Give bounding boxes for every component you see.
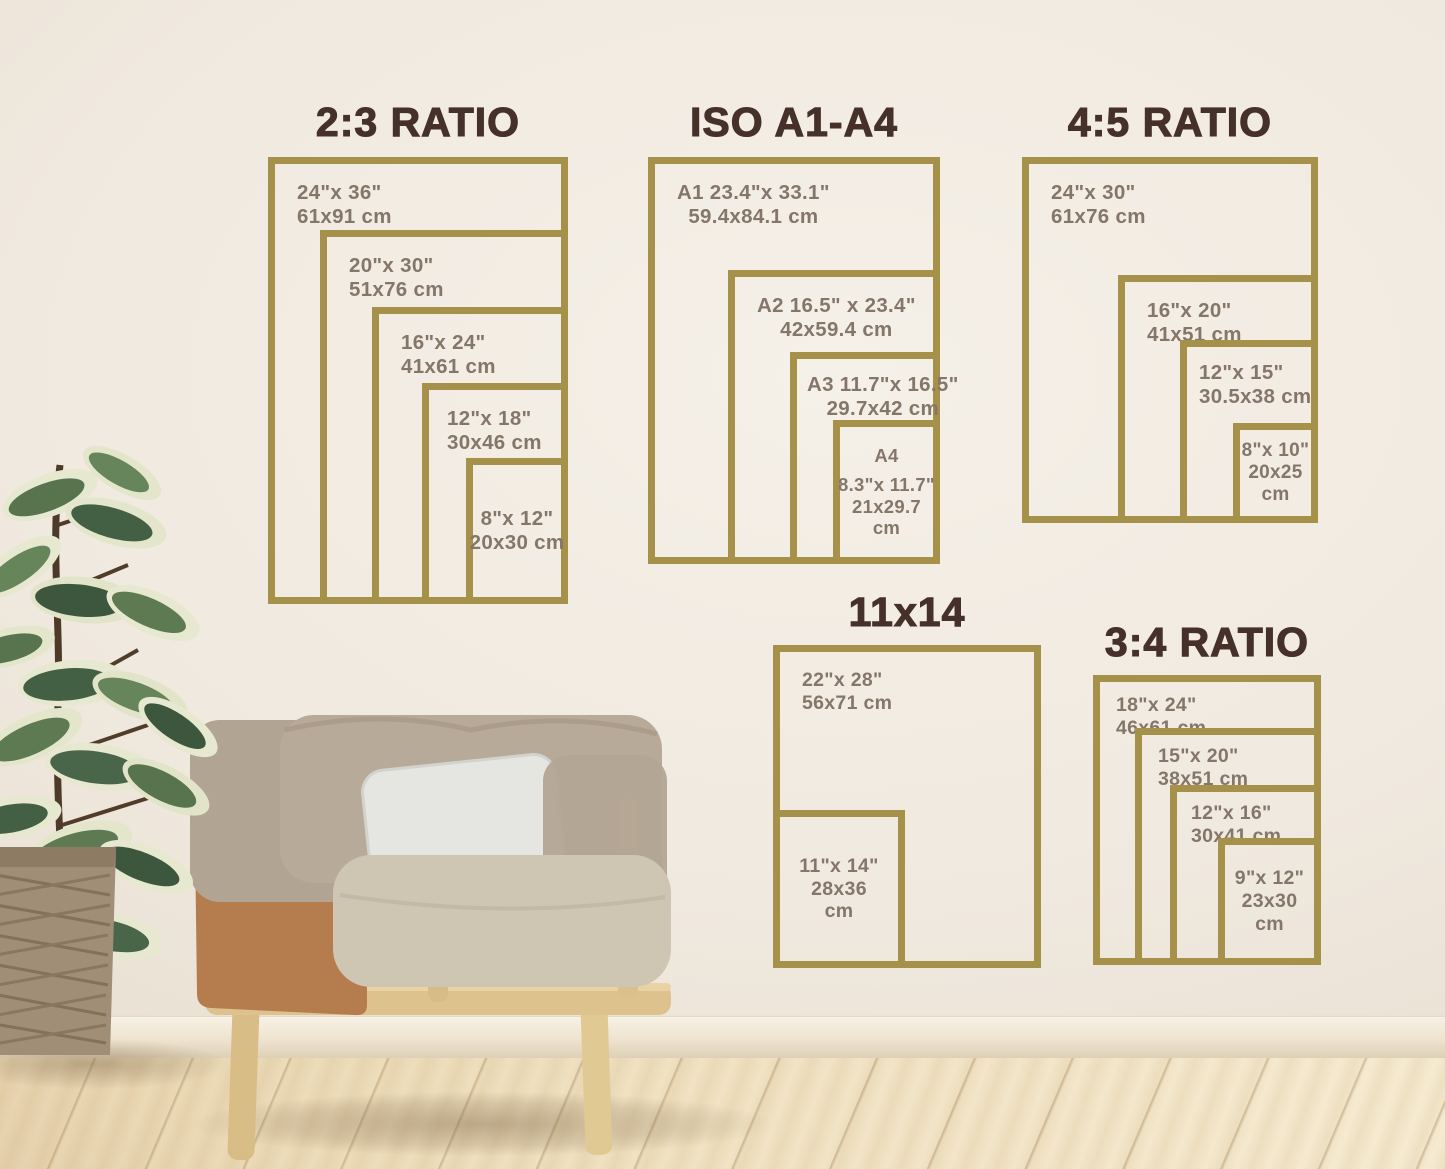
size-inches: 20"x 30" bbox=[349, 254, 444, 278]
size-label: 24"x 30" 61x76 cm bbox=[1051, 181, 1146, 229]
size-name: A4 bbox=[838, 445, 935, 467]
size-inches: 15"x 20" bbox=[1158, 745, 1248, 768]
size-chart-2-3-ratio: 2:3 RATIO 24"x 36" 61x91 cm 20"x 30" 51x… bbox=[268, 157, 568, 604]
size-cm: 51x76 cm bbox=[349, 278, 444, 302]
armchair bbox=[185, 700, 775, 1169]
size-label: 8"x 12" 20x30 cm bbox=[470, 507, 565, 555]
poster-size-guide-photo: { "colors":{"frame_gold":"#a6914b","titl… bbox=[0, 0, 1445, 1169]
size-cm: 56x71 cm bbox=[802, 692, 892, 715]
size-frame-a4: A4 8.3"x 11.7" 21x29.7 cm bbox=[833, 420, 940, 564]
chart-title: 11x14 bbox=[849, 590, 966, 635]
size-inches: 8"x 12" bbox=[470, 507, 565, 531]
size-cm: 21x29.7 bbox=[838, 496, 935, 518]
size-inches: 12"x 18" bbox=[447, 407, 542, 431]
size-frame-8x12: 8"x 12" 20x30 cm bbox=[466, 458, 568, 604]
size-cm: 28x36 bbox=[799, 878, 878, 901]
size-label: 22"x 28" 56x71 cm bbox=[802, 669, 892, 715]
size-inches: A3 11.7"x 16.5" bbox=[807, 373, 959, 397]
size-label: 8"x 10" 20x25 cm bbox=[1242, 440, 1310, 507]
size-inches: 24"x 36" bbox=[297, 181, 392, 205]
size-label: A3 11.7"x 16.5" 29.7x42 cm bbox=[807, 373, 959, 421]
size-cm: 61x76 cm bbox=[1051, 205, 1146, 229]
size-inches: A2 16.5" x 23.4" bbox=[757, 294, 916, 318]
chart-title: 3:4 RATIO bbox=[1105, 620, 1309, 665]
chart-title: ISO A1-A4 bbox=[690, 100, 898, 145]
size-inches: 22"x 28" bbox=[802, 669, 892, 692]
chart-title: 2:3 RATIO bbox=[316, 100, 520, 145]
size-label: 24"x 36" 61x91 cm bbox=[297, 181, 392, 229]
size-label: 12"x 18" 30x46 cm bbox=[447, 407, 542, 455]
size-cm-unit: cm bbox=[799, 900, 878, 923]
size-cm-unit: cm bbox=[838, 517, 935, 539]
size-inches: 24"x 30" bbox=[1051, 181, 1146, 205]
size-frame-9x12: 9"x 12" 23x30 cm bbox=[1218, 838, 1321, 965]
size-cm: 59.4x84.1 cm bbox=[677, 205, 830, 229]
size-label: 9"x 12" 23x30 cm bbox=[1235, 867, 1304, 935]
size-inches: 9"x 12" bbox=[1235, 867, 1304, 890]
size-label: 11"x 14" 28x36 cm bbox=[799, 855, 878, 923]
size-label: A1 23.4"x 33.1" 59.4x84.1 cm bbox=[677, 181, 830, 229]
size-frame-8x10: 8"x 10" 20x25 cm bbox=[1233, 423, 1318, 523]
size-cm: 30.5x38 cm bbox=[1199, 385, 1311, 409]
size-label: A2 16.5" x 23.4" 42x59.4 cm bbox=[757, 294, 916, 342]
size-inches: 11"x 14" bbox=[799, 855, 878, 878]
potted-plant bbox=[0, 395, 253, 1067]
size-cm: 42x59.4 cm bbox=[757, 318, 916, 342]
size-chart-iso-a1-a4: ISO A1-A4 A1 23.4"x 33.1" 59.4x84.1 cm A… bbox=[648, 157, 940, 564]
size-cm: 20x25 bbox=[1242, 462, 1310, 484]
size-label: A4 8.3"x 11.7" 21x29.7 cm bbox=[838, 445, 935, 539]
size-cm: 29.7x42 cm bbox=[807, 397, 959, 421]
size-inches: 16"x 20" bbox=[1147, 299, 1242, 323]
size-cm: 61x91 cm bbox=[297, 205, 392, 229]
size-label: 12"x 15" 30.5x38 cm bbox=[1199, 361, 1311, 409]
size-chart-3-4-ratio: 3:4 RATIO 18"x 24" 46x61 cm 15"x 20" 38x… bbox=[1093, 675, 1321, 965]
size-label: 15"x 20" 38x51 cm bbox=[1158, 745, 1248, 791]
size-inches: A1 23.4"x 33.1" bbox=[677, 181, 830, 205]
size-chart-11x14: 11x14 22"x 28" 56x71 cm 11"x 14" 28x36 c… bbox=[773, 645, 1041, 968]
size-inches: 12"x 15" bbox=[1199, 361, 1311, 385]
size-inches: 12"x 16" bbox=[1191, 802, 1281, 825]
size-inches: 16"x 24" bbox=[401, 331, 496, 355]
size-cm: 41x61 cm bbox=[401, 355, 496, 379]
size-frame-11x14: 11"x 14" 28x36 cm bbox=[773, 810, 905, 968]
size-chart-4-5-ratio: 4:5 RATIO 24"x 30" 61x76 cm 16"x 20" 41x… bbox=[1022, 157, 1318, 523]
size-cm: 20x30 cm bbox=[470, 531, 565, 555]
size-inches: 18"x 24" bbox=[1116, 694, 1206, 717]
size-cm-unit: cm bbox=[1242, 484, 1310, 506]
size-cm: 23x30 bbox=[1235, 890, 1304, 913]
size-label: 20"x 30" 51x76 cm bbox=[349, 254, 444, 302]
size-inches: 8"x 10" bbox=[1242, 440, 1310, 462]
size-cm-unit: cm bbox=[1235, 913, 1304, 936]
chart-title: 4:5 RATIO bbox=[1068, 100, 1272, 145]
size-cm: 30x46 cm bbox=[447, 431, 542, 455]
size-inches: 8.3"x 11.7" bbox=[838, 474, 935, 496]
size-label: 16"x 24" 41x61 cm bbox=[401, 331, 496, 379]
